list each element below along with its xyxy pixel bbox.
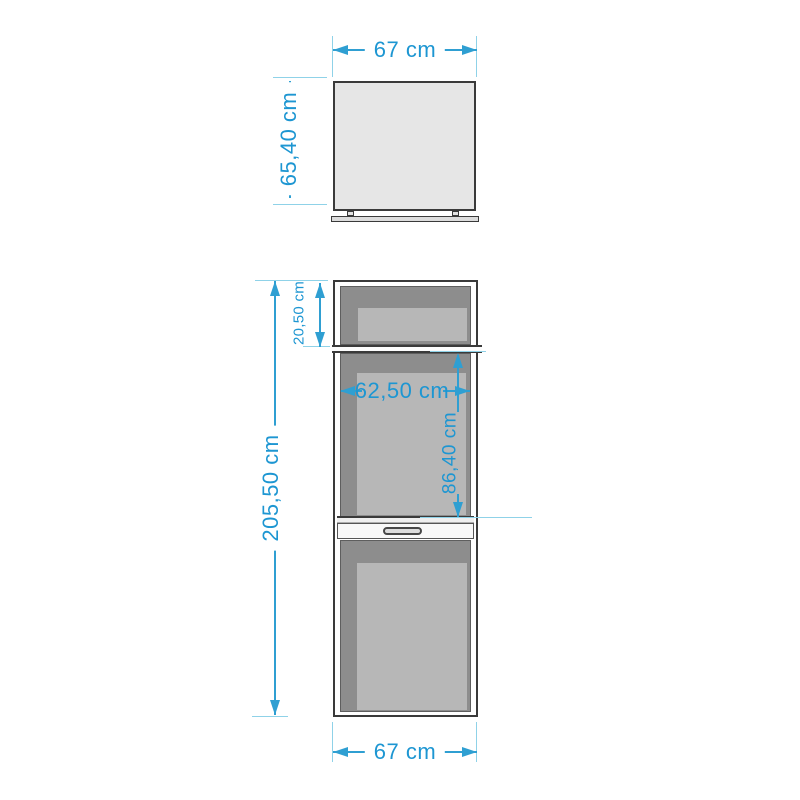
upper-cabinet-base-rail: [331, 216, 479, 222]
niche-height-extension-bottom: [420, 517, 532, 518]
arrowhead-right-icon: [462, 45, 477, 55]
upper-height-extension-bottom: [273, 204, 327, 205]
niche-width-label: 62,50 cm: [355, 379, 450, 403]
niche-height-extension-top: [430, 351, 486, 352]
upper-width-extension-right: [476, 36, 477, 77]
arrowhead-down-icon: [270, 700, 280, 715]
arrowhead-down-icon: [453, 502, 463, 517]
arrowhead-right-icon: [462, 747, 477, 757]
total-height-label: 205,50 cm: [259, 425, 283, 550]
arrowhead-down-icon: [315, 332, 325, 347]
arrowhead-left-icon: [333, 747, 348, 757]
total-height-extension-bottom: [252, 716, 288, 717]
arrowhead-up-icon: [453, 353, 463, 368]
product-dimension-diagram: 67 cm 65,40 cm 205,50 cm 20,50 cm 62,50 …: [0, 0, 800, 800]
top-niche-height-label: 20,50 cm: [291, 281, 308, 345]
bottom-niche-back-panel: [357, 563, 467, 710]
upper-height-label: 65,40 cm: [277, 83, 301, 196]
arrowhead-left-icon: [340, 386, 355, 396]
drawer-handle: [383, 527, 422, 535]
arrowhead-up-icon: [270, 281, 280, 296]
upper-cabinet-front: [333, 81, 476, 211]
arrowhead-left-icon: [333, 45, 348, 55]
arrowhead-right-icon: [455, 386, 470, 396]
upper-height-extension-top: [273, 77, 327, 78]
arrowhead-up-icon: [315, 283, 325, 298]
upper-width-extension-left: [332, 36, 333, 77]
upper-width-label: 67 cm: [365, 38, 445, 62]
lower-width-label: 67 cm: [365, 740, 445, 764]
niche-height-label: 86,40 cm: [440, 412, 461, 494]
top-niche-back-panel: [358, 308, 467, 341]
